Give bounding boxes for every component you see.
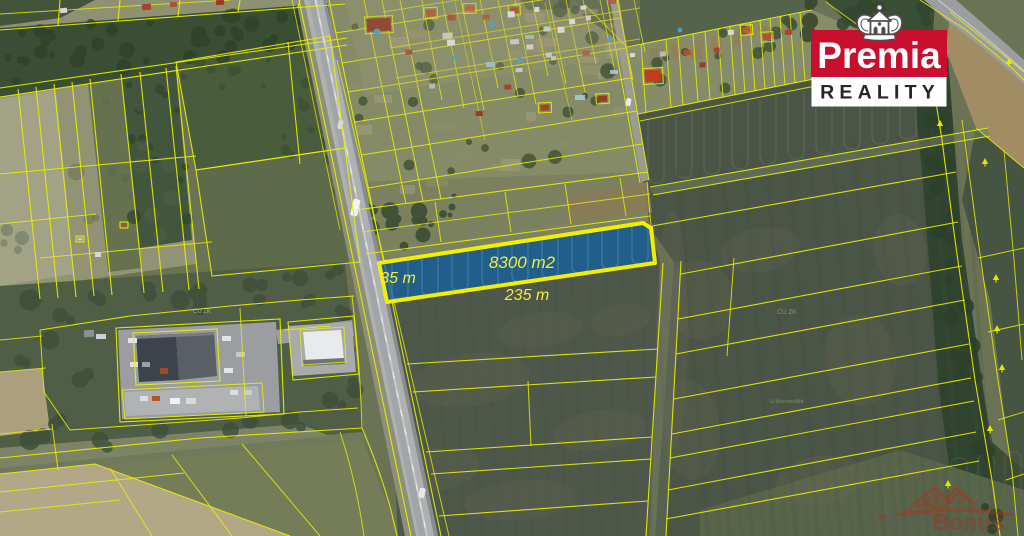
svg-text:35 m: 35 m <box>380 270 416 287</box>
svg-text:ČÚ ZK: ČÚ ZK <box>193 308 211 315</box>
svg-text:RealBonus: RealBonus <box>884 509 1004 535</box>
svg-text:235 m: 235 m <box>504 287 549 304</box>
svg-text:REALITY: REALITY <box>820 82 940 104</box>
svg-text:ČÚ ZK: ČÚ ZK <box>777 307 797 316</box>
svg-text:8300 m2: 8300 m2 <box>489 253 556 272</box>
svg-text:U křechovíště: U křechovíště <box>770 399 804 405</box>
